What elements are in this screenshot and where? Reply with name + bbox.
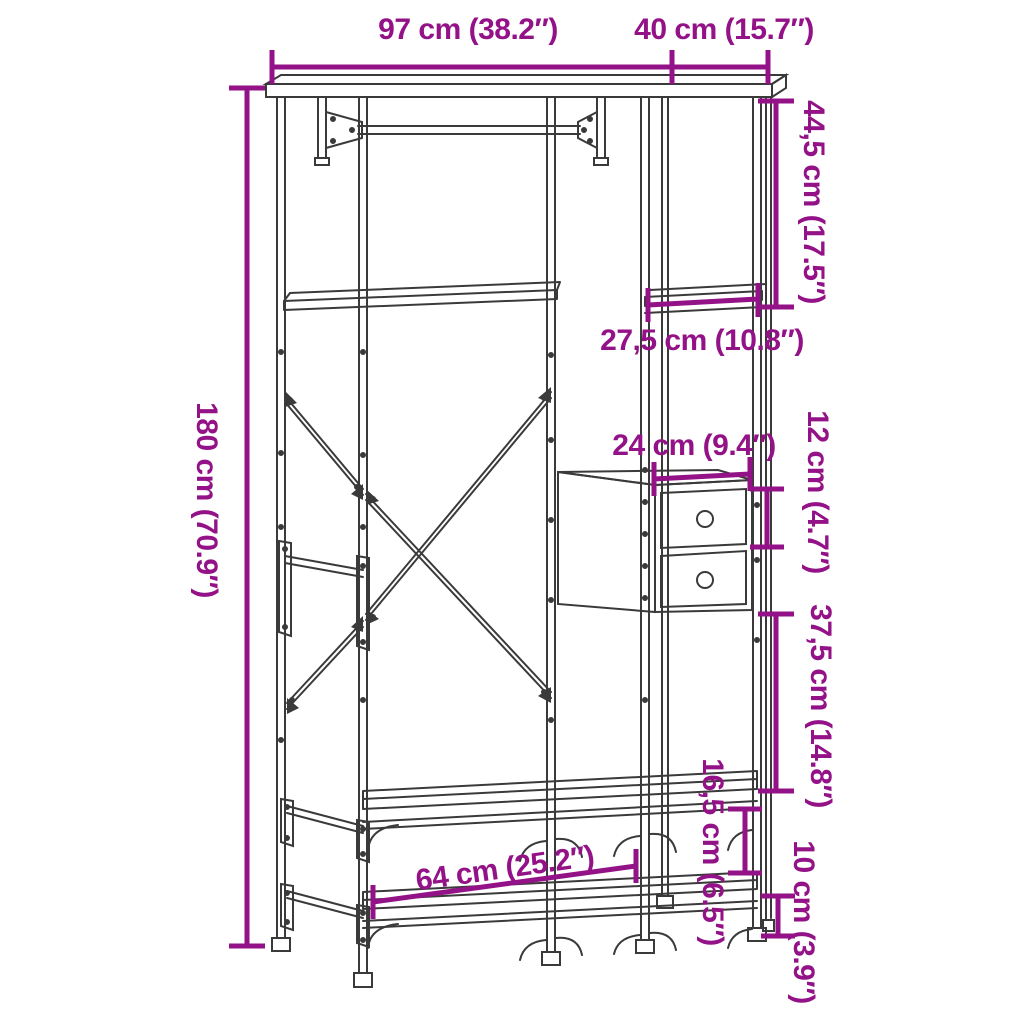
dim-line-top-cubby <box>758 101 794 307</box>
dim-line-height <box>229 88 265 946</box>
drawer-knob <box>697 572 713 588</box>
dim-label-drawer-width: 24 cm (9.4″) <box>612 431 775 461</box>
screws <box>278 116 760 943</box>
dim-line-drawer-height <box>750 489 784 547</box>
dim-label-top-cubby: 44,5 cm (17.5″) <box>798 100 828 304</box>
dim-label-bottom-clearance: 10 cm (3.9″) <box>788 840 818 1003</box>
dim-label-top-width: 97 cm (38.2″) <box>378 15 558 45</box>
dim-line-under-drawer <box>758 614 794 791</box>
dim-label-drawer-height: 12 cm (4.7″) <box>802 410 832 573</box>
cross-braces <box>279 387 551 714</box>
drawer-knob <box>697 511 713 527</box>
dim-line-top-width <box>272 50 768 84</box>
dimension-diagram: 97 cm (38.2″) 40 cm (15.7″) 180 cm (70.9… <box>0 0 1024 1024</box>
dim-label-top-depth: 40 cm (15.7″) <box>634 15 814 45</box>
dim-label-side-shelf: 27,5 cm (10.8″) <box>600 326 804 356</box>
dim-label-shelf-gap: 16,5 cm (6.5″) <box>697 758 727 945</box>
dim-line-shelf-gap <box>728 809 762 873</box>
dim-label-height: 180 cm (70.9″) <box>191 402 221 598</box>
top-board <box>266 75 786 97</box>
dim-label-under-drawer: 37,5 cm (14.8″) <box>805 604 835 808</box>
